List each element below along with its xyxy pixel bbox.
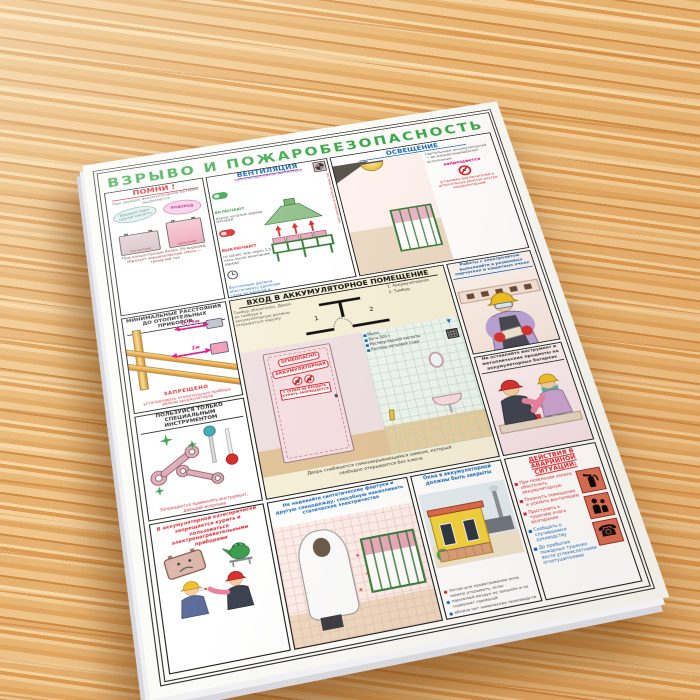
alkaline-battery-illustration: щелочной (166, 217, 205, 248)
spark-icon: ✶ (355, 553, 362, 560)
vent-grille-icon (446, 328, 460, 339)
panel-tools: Пользуйся только специальным инструменто… (134, 398, 263, 522)
distance-label-2: 1м (191, 345, 200, 351)
svg-text:2: 2 (368, 306, 374, 313)
panel-distances: Минимальные расстояния до отопительных п… (121, 301, 243, 414)
airflow-arrow-icon: ▼ (446, 318, 452, 324)
windows-bullet-list: Летом для проветривания окна можно откры… (444, 573, 538, 617)
no-open-flame-sign-icon (303, 374, 315, 384)
emergency-body: При появлении запаха обесточить аккумуля… (512, 465, 632, 571)
fire-extinguisher-icon (576, 466, 608, 493)
no-smoking-sign-icon (291, 376, 303, 386)
static-apron-illustration: ✶ ✶ ✶ (272, 503, 442, 649)
soap-bar-illustration (389, 410, 395, 421)
heating-pipe-vertical (131, 330, 148, 391)
windows-illustration (419, 480, 525, 569)
worker-gloves-illustration (451, 263, 561, 355)
door-warning-box: С ОГНЁМ НЕ ВХОДИТЬ КУРИТЬ ЗАПРЕЩАЕТСЯ (279, 381, 331, 400)
spark-icon: ✶ (365, 571, 372, 578)
spark-icon: ✶ (358, 587, 365, 594)
switch-off-icon (218, 229, 235, 238)
switch-on-icon (211, 191, 228, 200)
washbasin-illustration (432, 392, 464, 407)
emergency-phone-icon: ☎ (592, 517, 625, 545)
battery-pink-illustration (209, 341, 229, 355)
battery-rack-illustration (389, 203, 443, 252)
door-prohibition-row (291, 374, 315, 386)
photo-stage: ВЗРЫВО И ПОЖАРОБЕЗОПАСНОСТЬ ПОМНИ ! При … (0, 0, 700, 700)
battery-room-door-illustration: ОГНЕОПАСНО АККУМУЛЯТОРНАЯ С ОГНЁМ НЕ ВХО… (262, 343, 355, 464)
panel-remember: ПОМНИ ! При зарядке аккумуляторной батар… (103, 177, 225, 316)
distance-arrow-2 (176, 350, 207, 357)
mirror-illustration (427, 350, 446, 369)
apron-figure-illustration (294, 525, 361, 622)
svg-text:1: 1 (313, 315, 319, 322)
panel-no-smoking: В аккумуляторной категорически запрещает… (148, 504, 290, 675)
worker-pair-illustration (479, 356, 590, 445)
clock-icon (226, 269, 239, 280)
battery-rack-illustration (360, 529, 427, 593)
closed-window-icon (439, 522, 458, 547)
bush-icon (436, 548, 452, 562)
closed-window-icon (462, 518, 481, 543)
evacuation-people-icon (584, 492, 616, 520)
dome-lamp-icon (360, 160, 386, 173)
